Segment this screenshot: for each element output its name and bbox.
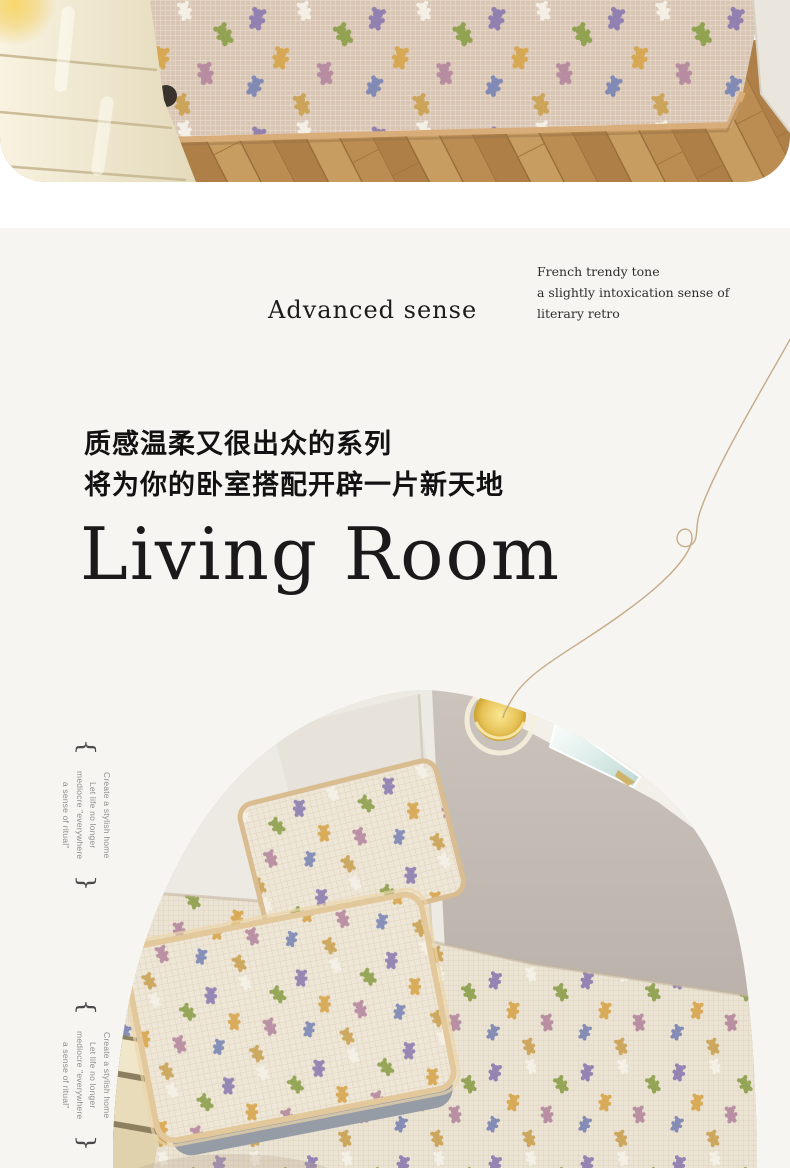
product-detail-page: Advanced sense French trendy tone a slig… [0,0,790,1168]
side-note-line: Create a stylish home [100,764,114,866]
arch-bedroom-photo [113,690,757,1168]
intro-right-line: a slightly intoxication sense of [537,282,729,303]
brace-bottom-icon: } [75,1126,97,1160]
hero-bed-cover [88,0,762,145]
chinese-headline-line2: 将为你的卧室搭配开辟一片新天地 [84,465,504,506]
side-note-text: Create a stylish home Let life no longer… [59,764,113,866]
brace-bottom-icon: } [75,866,97,900]
side-note-line: Let life no longer [86,764,100,866]
side-note-line: a sense of ritual" [59,764,73,866]
intro-right-line: French trendy tone [537,261,729,282]
hero-bedroom-photo [0,0,790,182]
chinese-headline-line1: 质感温柔又很出众的系列 [84,424,504,465]
brace-top-icon: { [75,990,97,1024]
side-note-line: Create a stylish home [100,1024,114,1126]
side-note-line: mediocre "everywhere [72,764,86,866]
side-note-line: a sense of ritual" [59,1024,73,1126]
intro-right-text: French trendy tone a slightly intoxicati… [537,261,729,324]
arch-photo-illustration [113,690,757,1168]
intro-right-line: literary retro [537,303,729,324]
side-note-line: Let life no longer [86,1024,100,1126]
side-note-line: mediocre "everywhere [72,1024,86,1126]
living-room-title: Living Room [80,512,561,596]
hero-photo-illustration [0,0,790,182]
intro-title: Advanced sense [268,296,477,324]
chinese-headline: 质感温柔又很出众的系列 将为你的卧室搭配开辟一片新天地 [84,424,504,506]
brace-top-icon: { [75,730,97,764]
side-note-text: Create a stylish home Let life no longer… [59,1024,113,1126]
